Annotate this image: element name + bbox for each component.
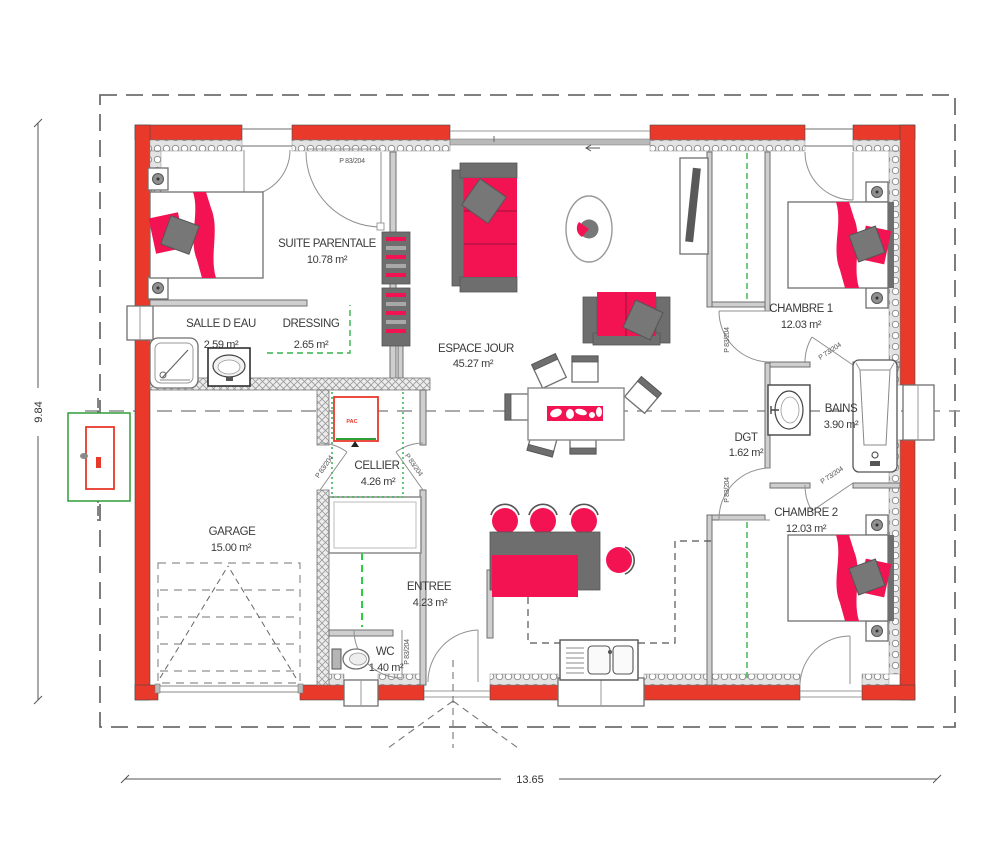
dimension-height-label: 9.84: [33, 401, 45, 422]
bay-window: [450, 131, 650, 151]
floor-plan: 13.65 9.84: [0, 0, 1000, 850]
washbasin-bains: [768, 385, 810, 435]
door-label-cellier-right: P 83/204: [403, 453, 424, 478]
washbasin-salle-eau: [208, 348, 250, 386]
porch-marks: [388, 660, 518, 748]
area-suite-parentale: 10.78 m²: [307, 254, 348, 266]
label-wc: WC: [376, 646, 394, 658]
bed-chambre1: [788, 182, 894, 308]
label-entree: ENTREE: [407, 581, 452, 593]
label-cellier: CELLIER: [354, 460, 399, 472]
label-chambre1: CHAMBRE 1: [769, 303, 833, 315]
window-suite-parentale: [242, 129, 292, 196]
label-dressing: DRESSING: [283, 318, 340, 330]
bathtub: [853, 360, 897, 472]
window-chambre1: [805, 129, 853, 200]
dimension-height: 9.84: [30, 119, 46, 704]
area-entree: 4.23 m²: [413, 597, 448, 609]
front-door: [424, 630, 490, 697]
garage-door: [155, 684, 303, 693]
shower: [150, 338, 198, 388]
label-bains: BAINS: [825, 403, 858, 415]
door-label-wc: P 83/204: [404, 639, 411, 665]
area-bains: 3.90 m²: [824, 419, 859, 431]
rug: [566, 196, 612, 262]
kitchen-island: [490, 504, 634, 597]
label-garage: GARAGE: [209, 526, 257, 538]
door-label-suite: P 83/204: [339, 158, 365, 165]
dimension-width: 13.65: [121, 770, 941, 786]
french-door-chambre2: [800, 636, 862, 697]
tv-stand: [680, 158, 708, 254]
door-label-chambre1: P 83/204: [724, 327, 731, 353]
door-label-bains-top: P 73/204: [818, 341, 843, 361]
area-espace-jour: 45.27 m²: [453, 358, 494, 370]
area-wc: 1.40 m²: [369, 662, 404, 674]
area-chambre1: 12.03 m²: [781, 319, 822, 331]
pac-label: PAC: [346, 419, 357, 425]
toilet: [332, 649, 369, 669]
label-espace-jour: ESPACE JOUR: [438, 343, 514, 355]
sofa-small: [583, 292, 670, 345]
bed-suite-parentale: [148, 168, 263, 299]
area-chambre2: 12.03 m²: [786, 523, 827, 535]
area-garage: 15.00 m²: [211, 542, 252, 554]
door-label-cellier-left: P 83/204: [315, 454, 336, 479]
sofa-large: [452, 163, 517, 292]
label-chambre2: CHAMBRE 2: [774, 507, 838, 519]
area-cellier: 4.26 m²: [361, 476, 396, 488]
label-salle-eau: SALLE D EAU: [186, 318, 256, 330]
dining-table: [505, 354, 661, 457]
outdoor-heat-pump-unit: [68, 413, 130, 501]
garage-door-marks: [158, 563, 300, 683]
area-salle-eau: 2.59 m²: [204, 339, 239, 351]
kitchen-sink-unit: [560, 640, 638, 680]
pac-unit: PAC: [334, 397, 378, 447]
dimension-width-label: 13.65: [516, 774, 544, 786]
area-dgt: 1.62 m²: [729, 447, 764, 459]
label-dgt: DGT: [734, 432, 757, 444]
door-label-bains-bottom: P 73/204: [820, 465, 845, 485]
label-suite-parentale: SUITE PARENTALE: [278, 238, 376, 250]
area-dressing: 2.65 m²: [294, 339, 329, 351]
door-label-chambre2: P 83/204: [724, 477, 731, 503]
bookshelf: [382, 232, 410, 346]
floor-plan-drawing: 13.65 9.84: [0, 0, 1000, 850]
